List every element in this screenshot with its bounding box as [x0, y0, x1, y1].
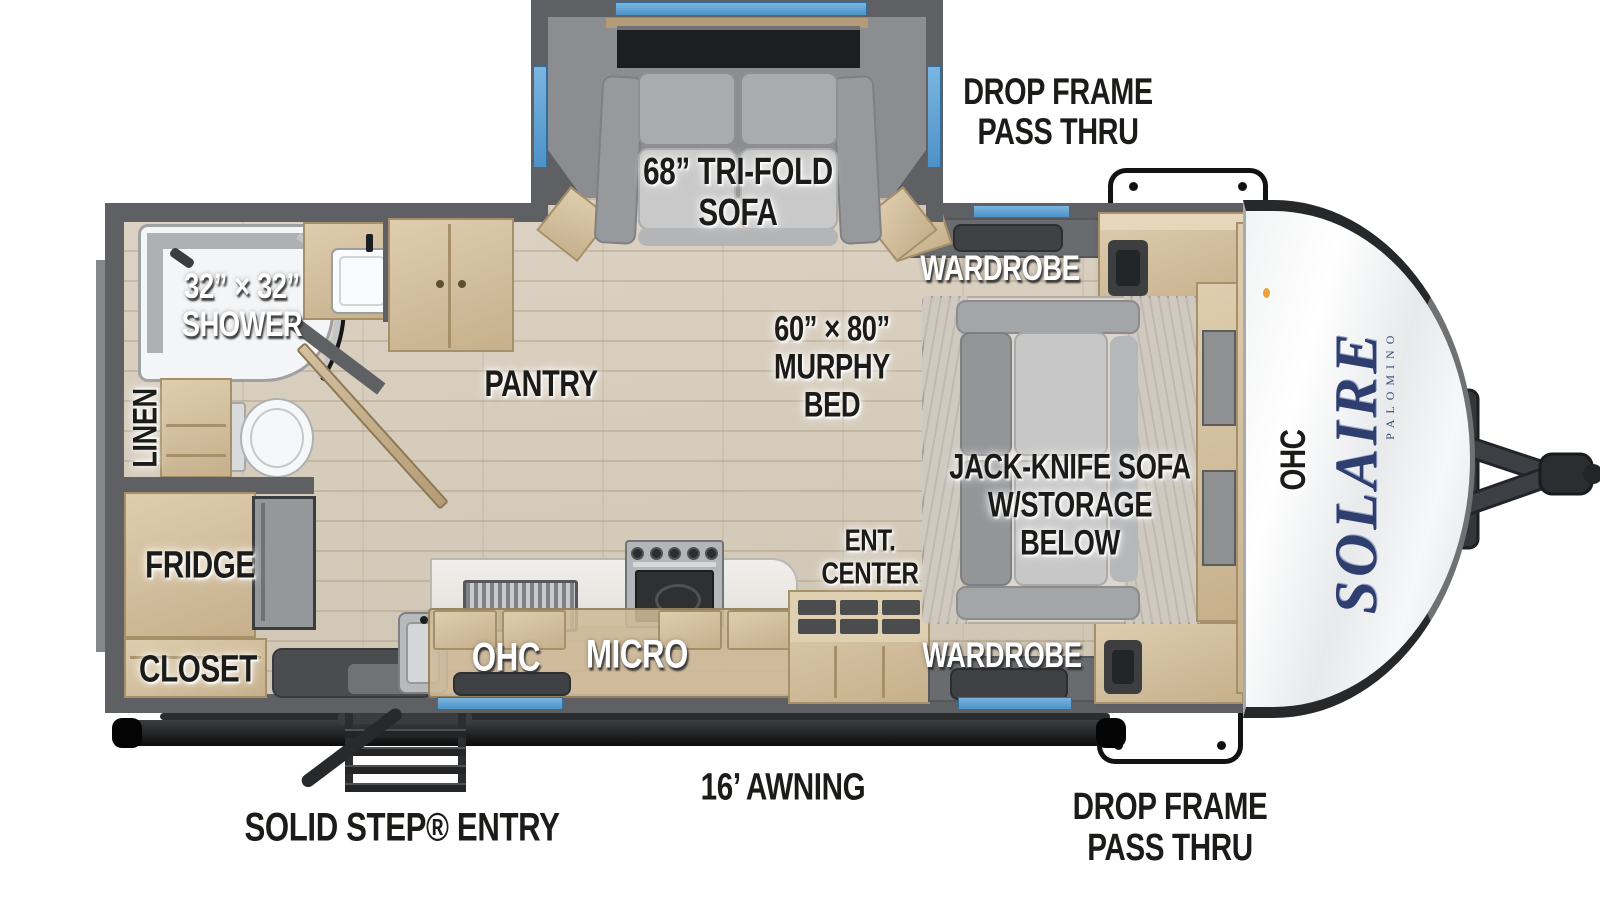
marker-light-icon: [1263, 288, 1270, 298]
ent-center-label: ENT. CENTER: [821, 524, 918, 591]
wardrobe-box-bottom: [1094, 622, 1244, 704]
ent-center-top: [790, 592, 928, 642]
floorplan-stage: SOLAIRE PALOMINO DROP FRAME PASS THRU DR…: [0, 0, 1600, 924]
trifold-back-cushion: [740, 72, 838, 146]
window: [615, 2, 867, 16]
wardrobe-bottom-label: WARDROBE: [922, 637, 1081, 675]
rear-trim: [96, 260, 105, 652]
shower-wall: [147, 233, 317, 249]
counter-tray: [953, 224, 1063, 252]
trifold-back-cushion: [638, 72, 736, 146]
ent-center-cabinet: [788, 590, 930, 704]
ohc-block: [727, 610, 791, 650]
head-cabinet-panel: [1202, 470, 1236, 566]
jackknife-back-cushion: [960, 332, 1012, 456]
bolt-icon: [1238, 182, 1247, 191]
pantry-cabinet: [388, 218, 514, 352]
drop-frame-top-label: DROP FRAME PASS THRU: [963, 72, 1153, 152]
head-cabinet-panel: [1202, 330, 1236, 426]
wardrobe-slot: [1104, 640, 1142, 694]
burners-row: [631, 545, 718, 561]
pantry-label: PANTRY: [484, 364, 597, 404]
wardrobe-top-label: WARDROBE: [920, 250, 1079, 288]
bolt-icon: [1129, 182, 1138, 191]
jackknife-armrest: [956, 586, 1140, 620]
window: [927, 66, 941, 168]
jack-knife-label: JACK-KNIFE SOFA W/STORAGE BELOW: [949, 448, 1190, 561]
jackknife-armrest: [956, 300, 1140, 334]
window: [973, 205, 1070, 218]
linen-cabinet: [160, 378, 232, 478]
window: [437, 697, 563, 710]
entry-label: SOLID STEP® ENTRY: [244, 806, 559, 849]
awning-rail: [160, 713, 1110, 720]
tv-console: [617, 26, 860, 68]
shower-label: 32” × 32” SHOWER: [182, 268, 303, 344]
trifold-armrest: [832, 75, 883, 245]
closet-label: CLOSET: [139, 649, 257, 690]
faucet-icon: [366, 234, 373, 252]
trifold-armrest: [594, 75, 645, 245]
entry-steps: [338, 713, 472, 793]
trifold-sofa-label: 68” TRI-FOLD SOFA: [643, 152, 833, 234]
fridge-label: FRIDGE: [145, 545, 255, 586]
drop-frame-bottom-label: DROP FRAME PASS THRU: [1073, 787, 1268, 869]
toilet-bowl: [240, 398, 314, 478]
brand-logo: SOLAIRE PALOMINO: [1322, 330, 1398, 615]
awning-end-cap: [112, 718, 142, 748]
window: [533, 66, 547, 168]
brand-name: SOLAIRE: [1322, 330, 1391, 615]
shower-head-icon: [168, 246, 195, 269]
kitchen-ohc-label: OHC: [472, 636, 540, 679]
jackknife-seat-cushion: [1014, 332, 1108, 456]
oven-handle: [633, 562, 716, 567]
fridge-door: [252, 496, 316, 630]
wardrobe-slot: [1108, 240, 1148, 296]
micro-label: MICRO: [586, 633, 688, 676]
wall-rear: [105, 203, 124, 713]
bolt-icon: [1217, 741, 1226, 750]
window: [958, 697, 1072, 710]
awning-label: 16’ AWNING: [701, 767, 866, 808]
shower-wall: [147, 233, 163, 353]
linen-label: LINEN: [128, 388, 165, 468]
murphy-bed-label: 60” × 80” MURPHY BED: [774, 310, 890, 423]
awning-end-cap: [1096, 718, 1126, 748]
front-ohc-label: OHC: [1275, 429, 1313, 490]
awning-tube: [118, 720, 1122, 746]
